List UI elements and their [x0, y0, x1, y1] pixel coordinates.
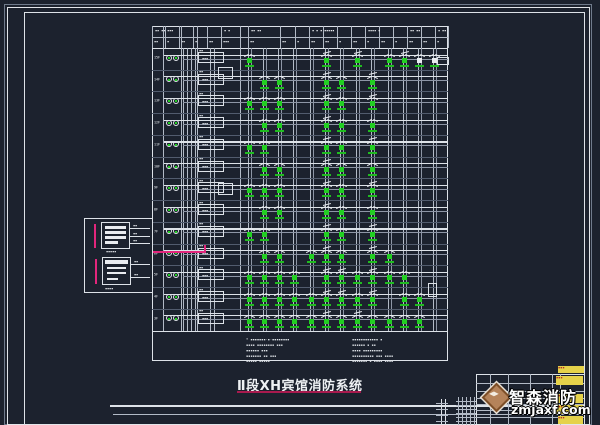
logo-domain: zmjaxf.com	[511, 402, 591, 417]
title-block-ladder-hline	[456, 409, 476, 410]
stair-detail-hline	[436, 421, 448, 422]
title-block: ▪▪▪▪▪▪▪▪▪▪▪▪▪▪▪	[0, 0, 600, 425]
title-block-ladder-hline	[456, 413, 476, 414]
stair-detail-hline	[436, 403, 448, 404]
title-block-ladder-hline	[456, 401, 476, 402]
stair-detail-hline	[436, 415, 448, 416]
logo-diamond-icon: ◀▶	[482, 383, 512, 413]
stair-detail-hline	[436, 409, 448, 410]
cad-drawing-canvas: ▪▪ ▪▪ ▪▪▪▪ ▪▪▪ ▪▪▪ ▪ ▪ ▪▪▪▪▪▪▪▪▪ ▪▪▪ ▪▪▪…	[0, 0, 600, 425]
title-block-ladder-hline	[456, 417, 476, 418]
title-block-ladder-hline	[456, 405, 476, 406]
stamp-chip: ▪▪▪	[558, 366, 584, 373]
watermark-logo: ◀▶ 智森消防 zmjaxf.com	[480, 381, 595, 421]
title-block-ladder-hline	[456, 421, 476, 422]
